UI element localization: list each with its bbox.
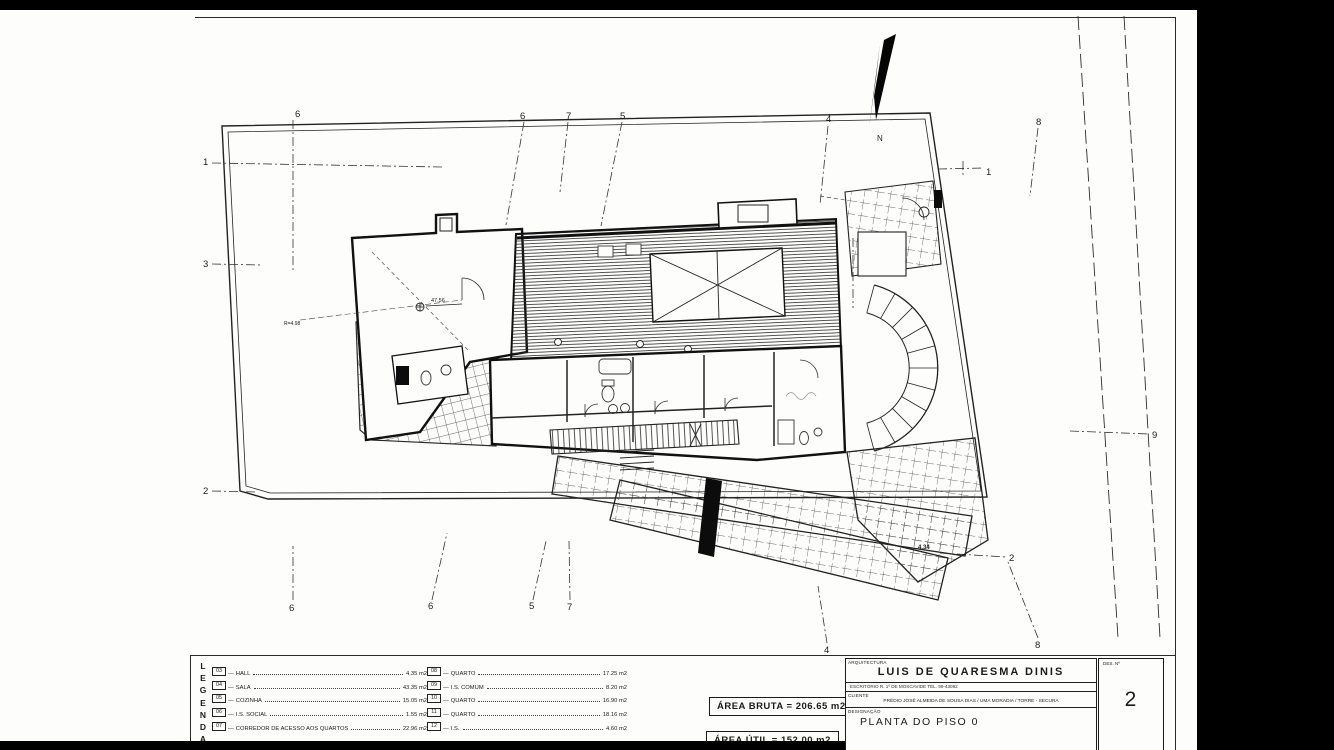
legend-code: 09 [427,681,441,690]
legend-column-left: 03 — HALL 4.35 m2 04 — SALA 43.35 m2 05 … [212,663,427,732]
legend-code: 10 [427,694,441,703]
grid-marker: 1 [986,167,991,178]
title-block-row-architect: ARQUITECTURA LUIS DE QUARESMA DINIS [846,659,1096,683]
legend-area-value: 17.25 m2 [603,671,627,677]
legend-area-value: 22.96 m2 [403,726,427,732]
title-block-row-office: ESCRITÓRIO R. 1º DE MOSCAVIDE TEL. 99-43… [846,683,1096,692]
sheet-number: 2 [1099,688,1163,712]
dotted-leader [463,729,604,730]
legend-separator: — [443,698,449,704]
grid-marker: 2 [203,486,208,497]
legend-room-name: QUARTO [451,712,476,718]
legend-room-name: CORREDOR DE ACESSO AOS QUARTOS [236,726,349,732]
deck-top-tab [718,199,797,228]
legend-separator: — [443,671,449,677]
legend-separator: — [228,698,234,704]
road-lines [1078,16,1160,638]
legend-area-value: 8.20 m2 [606,685,627,691]
dotted-leader [351,729,400,730]
dotted-leader [270,715,403,716]
legend-item: 08 — QUARTO 17.25 m2 [427,663,627,677]
legend-title-vertical: L E G E N D A [196,660,210,745]
grid-marker: 6 [289,603,294,614]
title-block-row-designation: DESIGNAÇÃO PLANTA DO PISO 0 [846,708,1096,732]
bedroom-wing [490,346,845,460]
legend-room-name: I.S. COMUM [451,685,484,691]
sheet-number-cell: DES. Nº 2 [1098,658,1164,750]
legend-separator: — [443,712,449,718]
grid-marker: 3 [203,259,208,270]
radius-annotation: R=4.98 [284,321,300,327]
grid-marker: 8 [1036,117,1041,128]
legend-code: 04 [212,681,226,690]
grid-marker: 5 [529,601,534,612]
grid-marker: 7 [567,602,572,613]
legend-room-name: HALL [236,671,251,677]
legend-room-name: SALA [236,685,251,691]
legend-area-value: 15.05 m2 [403,698,427,704]
legend-area-value: 1.55 m2 [406,712,427,718]
legend-room-name: QUARTO [451,671,476,677]
title-block-row-client: CLIENTE PRÉDIO JOSÉ ALMEIDA DE SOUSA DIA… [846,692,1096,708]
legend-separator: — [443,726,449,732]
legend-item: 07 — CORREDOR DE ACESSO AOS QUARTOS 22.9… [212,718,427,732]
legend-item: 06 — I.S. SOCIAL 1.55 m2 [212,704,427,718]
legend-separator: — [443,685,449,691]
dotted-leader [253,674,403,675]
legend-separator: — [228,712,234,718]
legend-code: 03 [212,667,226,676]
grid-marker: 9 [1152,430,1157,441]
architect-name: LUIS DE QUARESMA DINIS [846,665,1096,682]
dotted-leader [478,674,599,675]
grid-marker: 7 [566,111,571,122]
grid-marker: 8 [1035,640,1040,651]
legend-code: 12 [427,722,441,731]
legend-area-value: 4.60 m2 [606,726,627,732]
legend-separator: — [228,671,234,677]
legend-item: 12 — I.S. 4.60 m2 [427,718,627,732]
grid-marker: 6 [295,109,300,120]
grid-marker: 4 [824,645,829,656]
legend-code: 08 [427,667,441,676]
area-bruta-box: ÁREA BRUTA = 206.65 m2 [709,697,854,716]
north-arrow-icon: N [869,34,896,143]
dotted-leader [487,688,603,689]
scan-border-right [1197,0,1334,750]
legend-room-name: I.S. SOCIAL [236,712,268,718]
deck [511,199,841,362]
grid-marker: 6 [428,601,433,612]
legend-letter: N [196,709,210,721]
stove-block [396,366,409,385]
dotted-leader [478,715,599,716]
legend-area-value: 16.90 m2 [603,698,627,704]
legend-column-right: 08 — QUARTO 17.25 m2 09 — I.S. COMUM 8.2… [427,663,627,732]
grid-marker: 2 [1009,553,1014,564]
scanned-floor-plan-page: 6 6 7 5 4 8 1 3 2 1 9 2 6 6 5 7 4 8 N [0,0,1334,750]
grid-marker: 1 [203,157,208,168]
drawing-title: PLANTA DO PISO 0 [846,714,1096,732]
client-line: PRÉDIO JOSÉ ALMEIDA DE SOUSA DIAS / UMA … [846,698,1096,707]
grid-marker: 4 [826,114,831,125]
legend-letter: G [196,684,210,696]
dotted-leader [478,701,599,702]
legend-code: 05 [212,694,226,703]
grid-marker: 6 [520,111,525,122]
legend-code: 11 [427,708,441,717]
legend-code: 06 [212,708,226,717]
legend-room-name: I.S. [451,726,460,732]
grid-marker: 5 [620,111,625,122]
legend-area-value: 4.35 m2 [406,671,427,677]
floor-plan-drawing: 6 6 7 5 4 8 1 3 2 1 9 2 6 6 5 7 4 8 N [0,0,1334,656]
title-block: ARQUITECTURA LUIS DE QUARESMA DINIS ESCR… [845,658,1097,750]
legend-item: 11 — QUARTO 18.16 m2 [427,704,627,718]
north-label: N [877,134,883,143]
dotted-leader [254,688,400,689]
legend-letter: D [196,721,210,733]
legend-item: 10 — QUARTO 16.90 m2 [427,691,627,705]
bottom-band-left-edge [190,655,191,750]
scan-border-bottom [0,741,845,750]
legend-room-name: COZINHA [236,698,262,704]
legend-separator: — [228,726,234,732]
legend-letter: L [196,660,210,672]
legend-item: 03 — HALL 4.35 m2 [212,663,427,677]
curved-wall [867,285,938,451]
legend-item: 05 — COZINHA 15.05 m2 [212,691,427,705]
legend-letter: E [196,697,210,709]
legend-item: 09 — I.S. COMUM 8.20 m2 [427,677,627,691]
sheet-number-label: DES. Nº [1099,659,1163,666]
office-line: ESCRITÓRIO R. 1º DE MOSCAVIDE TEL. 99-43… [846,683,1096,691]
legend-code: 07 [212,722,226,731]
scan-border-top [0,0,1197,10]
legend-area-value: 43.35 m2 [403,685,427,691]
legend-item: 04 — SALA 43.35 m2 [212,677,427,691]
dotted-leader [265,701,400,702]
service-rooms [392,346,468,404]
legend-area-value: 18.16 m2 [603,712,627,718]
legend-letter: E [196,672,210,684]
legend-room-name: QUARTO [451,698,476,704]
legend-separator: — [228,685,234,691]
